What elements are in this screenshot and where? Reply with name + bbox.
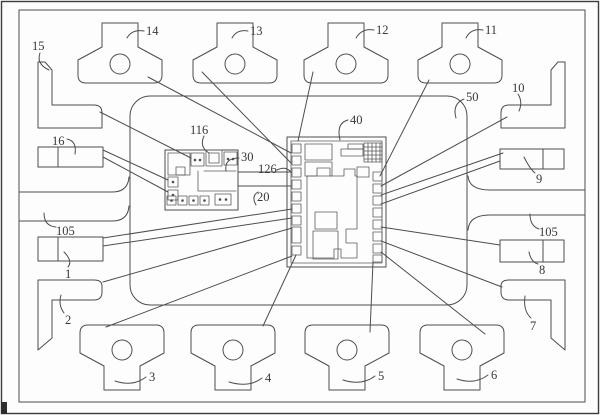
leads-left: [38, 62, 103, 350]
label-105-right: 105: [530, 214, 558, 239]
main-chip-40: [287, 137, 386, 267]
tab-hole: [112, 340, 132, 360]
bond-wire: [103, 228, 292, 282]
bond-wire-20: [103, 209, 292, 238]
scan-artifact: [1, 402, 7, 414]
chip40-component: [357, 167, 369, 177]
label-1: 1: [64, 252, 71, 281]
tab-13: [193, 23, 277, 83]
chip30-pads: [167, 152, 237, 205]
chip40-left-pads: [292, 144, 301, 255]
package-outline: [130, 96, 467, 305]
bond-wire: [103, 150, 168, 180]
label-12: 12: [356, 23, 389, 38]
chip40-component: [305, 144, 332, 160]
label-13: 13: [232, 24, 263, 38]
mounting-tabs-bottom: [80, 325, 504, 390]
label-text: 126: [258, 162, 277, 176]
bond-wire: [381, 161, 500, 204]
chip30-region: [176, 167, 185, 175]
label-text: 7: [530, 319, 536, 333]
label-text: 9: [536, 172, 542, 186]
bond-wire: [381, 227, 500, 245]
chip40-right-pads: [373, 172, 382, 262]
tie-bar-right-lower-105: [468, 215, 585, 230]
lead-9-shape: [500, 149, 564, 169]
label-text: 10: [512, 81, 525, 95]
package-body-50: [19, 96, 585, 305]
bond-wire: [381, 153, 503, 195]
label-14: 14: [127, 24, 159, 38]
label-text: 14: [146, 24, 159, 38]
tab-hole: [110, 54, 130, 74]
bond-wire: [100, 112, 191, 158]
bond-wire: [381, 252, 485, 334]
label-text: 15: [32, 39, 45, 53]
lead-10-shape: [501, 62, 565, 128]
tab-hole: [450, 54, 470, 74]
chip40-component: [341, 149, 363, 156]
label-text: 5: [378, 369, 384, 383]
label-30: 30: [226, 150, 254, 171]
patent-figure-page: 14 13 12 11 15 16 105 1 2 3 4 5 6 7 8 10…: [0, 0, 600, 415]
mounting-tabs-top: [78, 23, 502, 83]
tie-bar-right-upper: [468, 176, 585, 190]
tab-hole: [452, 340, 472, 360]
label-text: 50: [466, 90, 479, 104]
label-text: 2: [65, 313, 71, 327]
label-5: 5: [343, 369, 384, 383]
bond-wire: [370, 262, 373, 332]
label-text: 105: [56, 224, 75, 238]
label-9: 9: [524, 157, 542, 186]
tie-bar-left-lower-105: [19, 206, 129, 221]
label-6: 6: [457, 368, 497, 382]
label-text: 40: [350, 113, 363, 127]
label-text: 8: [539, 263, 545, 277]
leads-right: [500, 62, 565, 350]
label-text: 1: [65, 267, 71, 281]
lead-1-shape: [38, 237, 103, 261]
bond-wire: [298, 72, 313, 141]
label-text: 16: [52, 134, 65, 148]
lead-7-shape: [501, 280, 565, 350]
label-text: 30: [241, 150, 254, 164]
tie-bar-left-upper: [19, 177, 129, 192]
lead-15-shape: [38, 62, 102, 128]
bond-wire: [381, 241, 502, 287]
lead-8-shape: [500, 240, 564, 262]
label-126: 126: [258, 162, 290, 176]
tab-4: [191, 325, 275, 390]
label-text: 12: [376, 23, 389, 37]
label-text: 105: [539, 225, 558, 239]
label-7: 7: [525, 296, 537, 333]
label-text: 116: [190, 123, 208, 137]
label-text: 6: [491, 368, 497, 382]
tab-shape: [305, 325, 389, 390]
label-text: 3: [149, 370, 155, 384]
bond-wire: [381, 117, 507, 186]
chip30-partition: [198, 171, 236, 191]
tab-5: [305, 325, 389, 390]
label-105-left: 105: [44, 213, 75, 238]
label-text: 4: [265, 371, 272, 385]
bond-wire: [380, 80, 429, 176]
label-11: 11: [466, 23, 497, 38]
label-20: 20: [254, 190, 270, 205]
bond-wires: [100, 72, 507, 334]
tab-hole: [225, 54, 245, 74]
bond-wire: [103, 157, 168, 192]
chip40-die-pad: [307, 168, 357, 258]
label-16: 16: [52, 134, 75, 154]
leadframe-diagram-canvas: 14 13 12 11 15 16 105 1 2 3 4 5 6 7 8 10…: [0, 0, 600, 415]
label-116: 116: [190, 123, 209, 153]
label-15: 15: [32, 39, 49, 70]
bond-wire: [103, 218, 292, 246]
tab-hole: [223, 340, 243, 360]
small-chip-30: [165, 150, 238, 210]
image-frame: [2, 2, 599, 414]
lead-16-shape: [38, 147, 103, 167]
chip40-crosshatch-block: [364, 143, 382, 162]
label-text: 11: [485, 23, 497, 37]
label-3: 3: [115, 370, 155, 384]
chip40-component: [315, 212, 337, 229]
label-40: 40: [339, 113, 363, 140]
drawing-border: [19, 10, 585, 402]
label-10: 10: [512, 81, 525, 111]
label-text: 20: [257, 190, 270, 204]
chip40-component: [348, 144, 363, 149]
tab-hole: [336, 54, 356, 74]
bond-wire: [106, 256, 292, 327]
chip40-outer: [287, 137, 386, 267]
tab-hole: [337, 340, 357, 360]
chip40-component: [305, 162, 332, 176]
label-text: 13: [250, 24, 263, 38]
tab-shape: [191, 325, 275, 390]
